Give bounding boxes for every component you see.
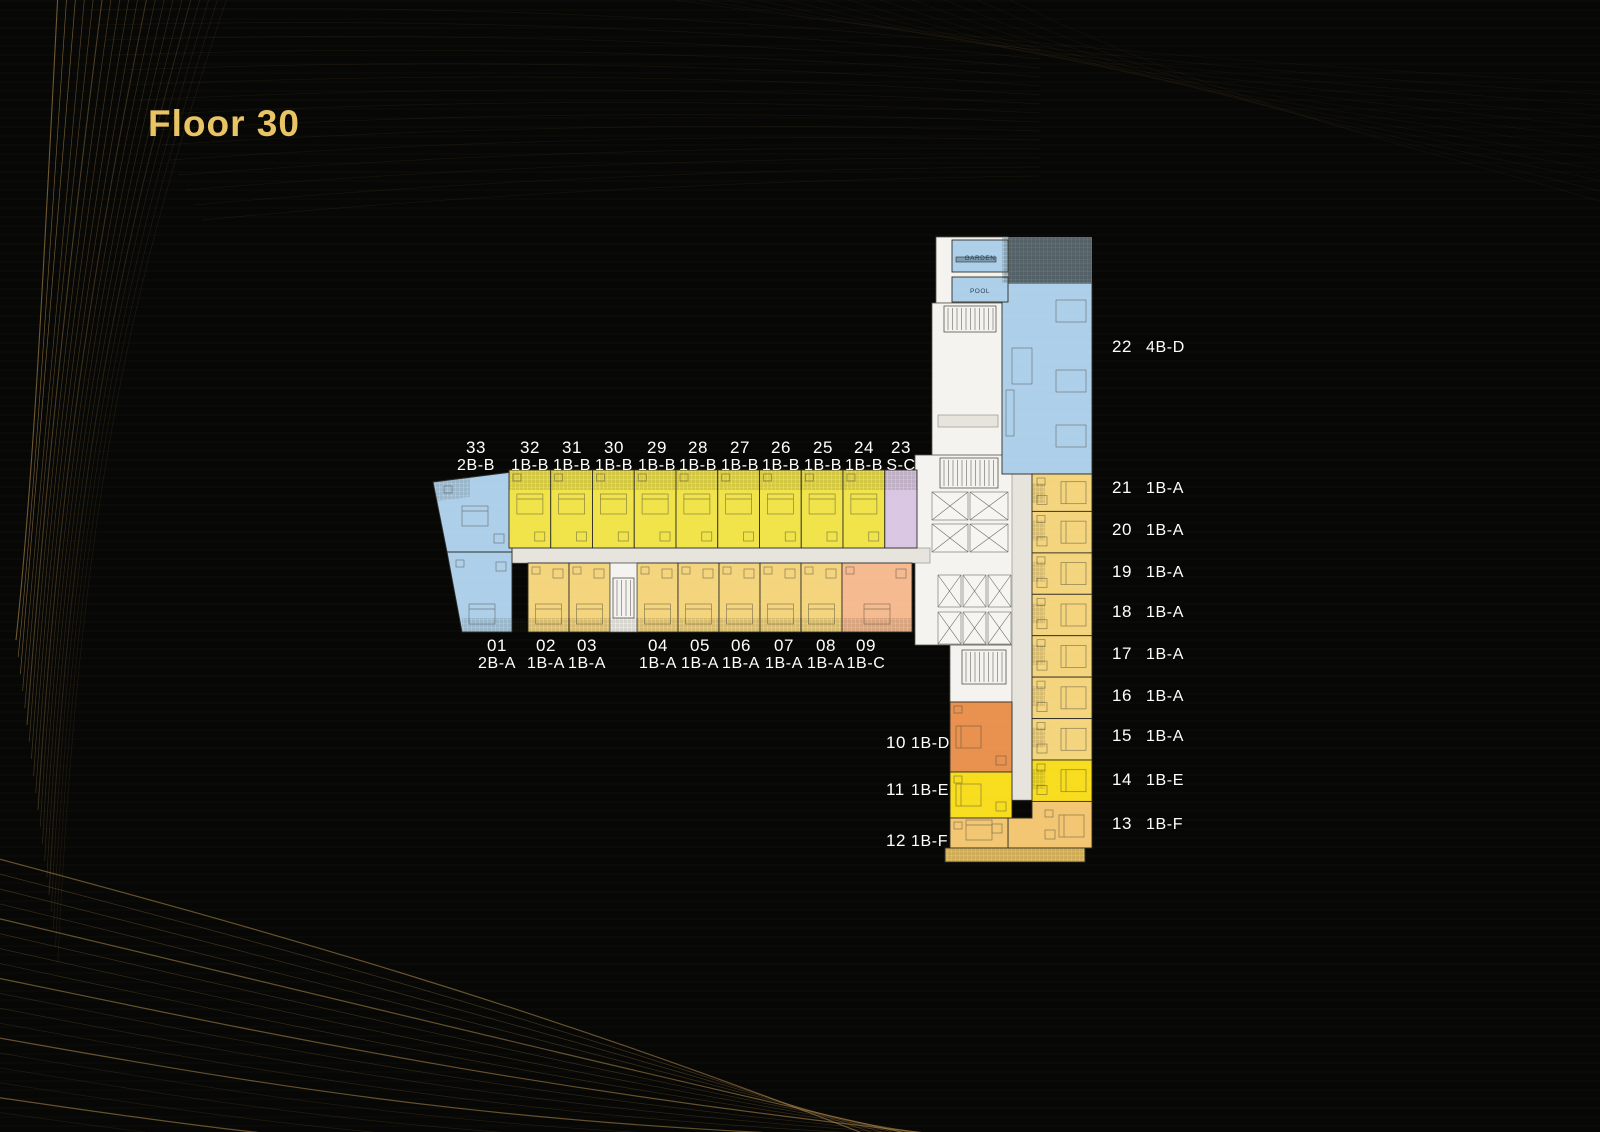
label-unit-18-type: 1B-A [1146,604,1184,621]
label-unit-17-type: 1B-A [1146,646,1184,663]
elevator [938,575,961,607]
label-unit-22-number: 22 [1112,337,1132,356]
label-unit-06-type: 1B-A [722,655,760,672]
label-unit-23-number: 23 [891,438,911,457]
elevator [932,492,968,520]
label-unit-31-type: 1B-B [553,457,591,474]
label-unit-07-type: 1B-A [765,655,803,672]
stairs [940,458,998,488]
label-unit-29-type: 1B-B [638,457,676,474]
stairs [962,650,1006,684]
balcony-hatch [528,618,912,632]
label-unit-09-type: 1B-C [847,655,886,672]
label-unit-15-type: 1B-A [1146,728,1184,745]
unit-33-balcony [433,477,470,501]
label-unit-10-number: 10 [886,733,906,752]
elevator [970,492,1008,520]
label-unit-18-number: 18 [1112,602,1132,621]
corridor-vertical [1012,474,1032,800]
label-unit-24-number: 24 [854,438,874,457]
label-unit-08-type: 1B-A [807,655,845,672]
label-unit-30-type: 1B-B [595,457,633,474]
balcony-hatch [1003,238,1091,282]
elevator [988,575,1011,607]
label-unit-23-type: S-C [886,457,915,474]
stairs [613,578,634,618]
label-unit-20-number: 20 [1112,520,1132,539]
label-unit-11-number: 11 [886,780,905,799]
balcony-hatch [1032,728,1045,748]
label-unit-06-number: 06 [731,636,751,655]
label-unit-26-number: 26 [771,438,791,457]
label-unit-28-type: 1B-B [679,457,717,474]
label-unit-03-number: 03 [577,636,597,655]
garden-label: GARDEN [965,255,996,262]
planter [938,415,998,427]
elevator [938,612,961,644]
page: Floor 30 332B-B321B-B311B-B301B-B291B-B2… [0,0,1600,1132]
label-unit-19-number: 19 [1112,562,1132,581]
label-unit-28-number: 28 [688,438,708,457]
label-unit-27-number: 27 [730,438,750,457]
label-unit-07-number: 07 [774,636,794,655]
label-unit-14-type: 1B-E [1146,772,1184,789]
label-unit-25-type: 1B-B [804,457,842,474]
label-unit-33-number: 33 [466,438,486,457]
label-unit-10-type: 1B-D [911,735,950,752]
label-unit-05-number: 05 [690,636,710,655]
balcony-hatch [945,848,1085,862]
pool-label: POOL [970,288,990,295]
label-unit-27-type: 1B-B [721,457,759,474]
label-unit-24-type: 1B-B [845,457,883,474]
balcony-hatch [462,618,526,632]
label-unit-29-number: 29 [647,438,667,457]
elevator [970,524,1008,552]
label-unit-32-number: 32 [520,438,540,457]
label-unit-20-type: 1B-A [1146,522,1184,539]
label-unit-01-number: 01 [487,636,507,655]
label-unit-09-number: 09 [856,636,876,655]
label-unit-21-type: 1B-A [1146,480,1184,497]
label-unit-08-number: 08 [816,636,836,655]
label-unit-05-type: 1B-A [681,655,719,672]
floor-plan: 332B-B321B-B311B-B301B-B291B-B281B-B271B… [0,0,1600,1132]
label-unit-30-number: 30 [604,438,624,457]
balcony-hatch [1032,483,1045,503]
elevator [932,524,968,552]
label-unit-04-type: 1B-A [639,655,677,672]
label-unit-13-number: 13 [1112,814,1132,833]
balcony-hatch [1032,603,1045,623]
stairs [944,306,996,332]
label-unit-16-number: 16 [1112,686,1132,705]
label-unit-12-type: 1B-F [911,833,948,850]
label-unit-25-number: 25 [813,438,833,457]
label-unit-22-type: 4B-D [1146,339,1185,356]
label-unit-32-type: 1B-B [511,457,549,474]
balcony-hatch [1032,520,1045,540]
label-unit-16-type: 1B-A [1146,688,1184,705]
label-unit-11-type: 1B-E [911,782,949,799]
balcony-hatch [1032,645,1045,665]
label-unit-19-type: 1B-A [1146,564,1184,581]
label-unit-31-number: 31 [562,438,582,457]
label-unit-02-number: 02 [536,636,556,655]
label-unit-13-type: 1B-F [1146,816,1183,833]
balcony-hatch [1032,562,1045,582]
elevator [988,612,1011,644]
label-unit-21-number: 21 [1112,478,1132,497]
label-unit-33-type: 2B-B [457,457,495,474]
elevator [963,575,986,607]
plan-shapes [433,237,1092,862]
label-unit-26-type: 1B-B [762,457,800,474]
label-unit-01-type: 2B-A [478,655,516,672]
label-unit-17-number: 17 [1112,644,1132,663]
label-unit-02-type: 1B-A [527,655,565,672]
unit-13 [1008,801,1092,848]
balcony-hatch [1032,686,1045,706]
label-unit-12-number: 12 [886,831,906,850]
corridor-horizontal [512,548,930,563]
label-unit-03-type: 1B-A [568,655,606,672]
label-unit-14-number: 14 [1112,770,1132,789]
unit-22 [1002,283,1092,474]
label-unit-15-number: 15 [1112,726,1132,745]
balcony-hatch [1032,769,1045,789]
elevator [963,612,986,644]
label-unit-04-number: 04 [648,636,668,655]
